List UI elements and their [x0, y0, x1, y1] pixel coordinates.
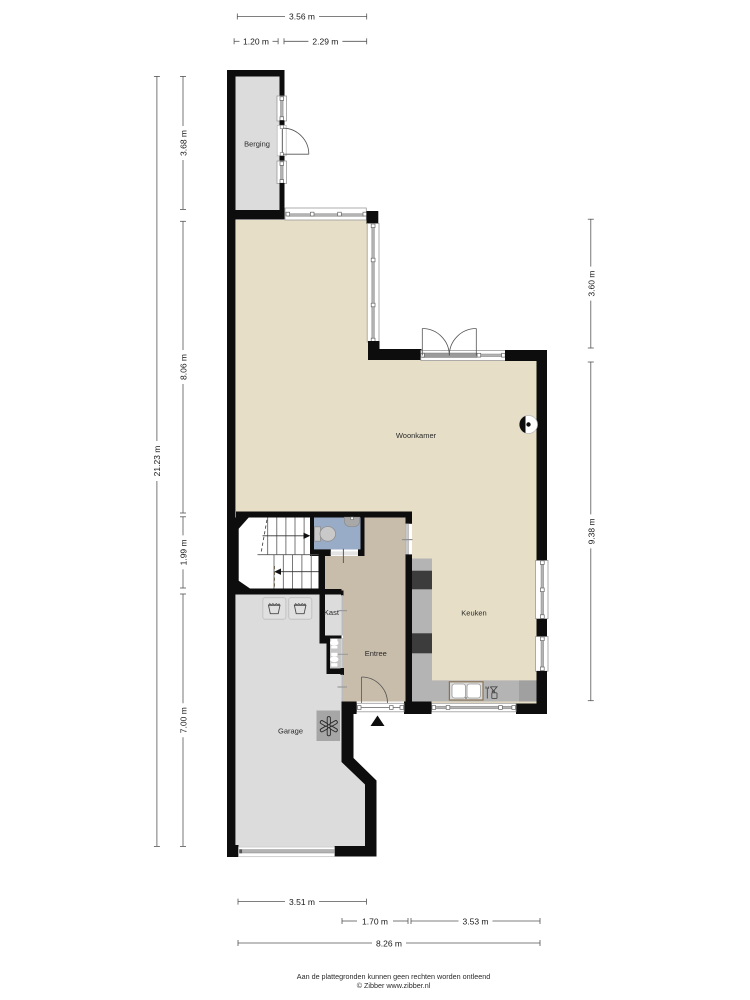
svg-text:3.68 m: 3.68 m	[179, 130, 189, 156]
svg-text:3.60 m: 3.60 m	[586, 271, 596, 297]
svg-text:3.51 m: 3.51 m	[289, 897, 315, 907]
svg-text:Garage: Garage	[278, 727, 303, 736]
svg-text:Berging: Berging	[244, 140, 270, 149]
svg-text:8.06 m: 8.06 m	[179, 354, 189, 380]
svg-text:Keuken: Keuken	[461, 609, 486, 618]
svg-text:1.70 m: 1.70 m	[362, 916, 388, 926]
svg-text:8.26 m: 8.26 m	[376, 938, 402, 948]
svg-text:2.29 m: 2.29 m	[312, 36, 338, 46]
svg-text:3.56 m: 3.56 m	[289, 11, 315, 21]
svg-text:Kast: Kast	[324, 608, 340, 617]
svg-text:© Zibber www.zibber.nl: © Zibber www.zibber.nl	[357, 981, 431, 990]
svg-text:Entree: Entree	[365, 649, 387, 658]
svg-text:Woonkamer: Woonkamer	[396, 431, 437, 440]
svg-text:9.38 m: 9.38 m	[586, 518, 596, 544]
svg-text:7.00 m: 7.00 m	[179, 707, 189, 733]
svg-text:21.23 m: 21.23 m	[152, 446, 162, 477]
svg-text:3.53 m: 3.53 m	[463, 916, 489, 926]
svg-text:1.20 m: 1.20 m	[243, 36, 269, 46]
svg-text:Aan de plattegronden kunnen ge: Aan de plattegronden kunnen geen rechten…	[297, 972, 490, 981]
svg-text:1.99 m: 1.99 m	[179, 539, 189, 565]
